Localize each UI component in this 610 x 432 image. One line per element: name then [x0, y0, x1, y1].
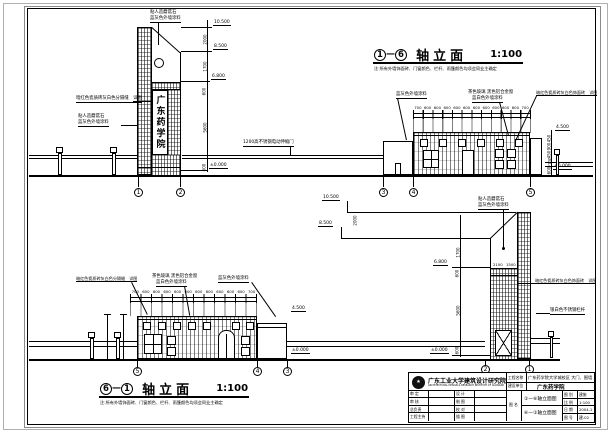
label-leader [503, 210, 504, 248]
dim-value: 1700 [203, 61, 208, 71]
material-label: 暗红色瓷质砖灰白色分隔缝 详图 [76, 276, 137, 282]
material-label: 蓝灰色外墙涂料 [478, 203, 509, 210]
window [458, 139, 466, 147]
dim-value: 600 [546, 167, 551, 175]
dim-value: 600 [511, 105, 521, 110]
axis-bubble: 5 [526, 188, 535, 197]
tower-band [490, 268, 517, 276]
tb-divider [506, 373, 507, 421]
window [241, 336, 250, 345]
institute-logo: ★ [412, 376, 425, 389]
door-mullion [226, 334, 227, 359]
elevation-flag: 6.800 [211, 74, 226, 80]
gate-rail-line [287, 341, 485, 342]
fence-rail-line [531, 343, 560, 344]
window-large [423, 150, 439, 168]
meta-value: 建-02 [579, 416, 589, 420]
cornice-line [137, 319, 257, 320]
material-label: 茶色玻璃 黑色铝合金窗 [152, 274, 197, 280]
fence-post [90, 338, 94, 359]
window [496, 139, 504, 147]
material-label: 暗红色瓷质砖灰白色分隔缝 详图 [76, 96, 142, 103]
dim-value: 600 [481, 105, 491, 110]
tower-right-edge [180, 52, 181, 175]
dim-value: 5600 [203, 122, 208, 132]
dim-leader [452, 355, 490, 356]
role-label: 制 图 [455, 398, 475, 406]
dim-value: 2000 [353, 215, 358, 225]
extension-lines [413, 119, 531, 133]
dim-value: 600 [442, 105, 452, 110]
dim-value: 600 [201, 88, 206, 96]
material-label: 贴人造蘑菇石 [478, 197, 504, 203]
flag-leader [347, 201, 348, 212]
dim-value: 600 [433, 105, 443, 110]
window-large [144, 334, 162, 354]
axis-line [413, 177, 414, 187]
window [158, 322, 166, 330]
title-dash: — [386, 50, 395, 60]
flag-leader [341, 227, 342, 238]
window [507, 160, 516, 169]
dim-ticks [413, 110, 531, 119]
material-label: 暗红色瓷质砖灰白色饰面砖 详图 [535, 278, 596, 284]
flag-leader [347, 212, 516, 213]
axis-bubble: 4 [253, 367, 262, 376]
dim-leader [181, 27, 212, 28]
role-label: 审 核 [409, 398, 429, 406]
fence-post [116, 338, 120, 359]
elevation-flag: 8.500 [318, 221, 333, 227]
dim-value: 600 [172, 289, 183, 294]
material-label: 暗红色瓷质砖灰白色饰面砖 详图 [536, 90, 597, 96]
dimension-line [460, 215, 461, 357]
client-label: 建设单位 [508, 384, 523, 388]
role-value [429, 398, 455, 406]
fence-rail-line [531, 338, 560, 339]
ground-line [29, 359, 560, 361]
dim-value: 600 [215, 289, 226, 294]
title-note: 注:所有外墙饰面砖、门窗颜色、栏杆、雨篷颜色均须会同业主确定 [100, 400, 223, 406]
dim-value: 2100 [493, 262, 503, 267]
axis-bubble: 6 [100, 383, 112, 395]
label-leader [518, 283, 535, 284]
tower-sign-board: 广东药学院 [152, 90, 168, 155]
tower-hatch [152, 155, 180, 175]
project-label: 工程名称 [508, 376, 523, 380]
gate-pillar [123, 315, 124, 359]
axis-line [180, 177, 181, 187]
fence-post [550, 337, 553, 358]
dim-chain: 700600600600600600600600600600600700 [130, 289, 257, 294]
annex-line [257, 327, 287, 328]
title-underline [373, 62, 523, 64]
signature-table: 审 定 设 计 审 核 制 图 总负责 校 对 工程主持 描 图 [409, 390, 506, 421]
drawing-title: ①—⑥轴立面图 [524, 395, 557, 402]
window [246, 322, 254, 330]
dim-value: 1700 [456, 247, 461, 257]
gate-note-leader [290, 146, 291, 155]
axis-bubble: 1 [134, 188, 143, 197]
fence-rail-line [545, 162, 593, 163]
elevation-flag: ±0.000 [291, 348, 310, 354]
dim-value: 600 [201, 164, 206, 172]
dim-leader [181, 81, 210, 82]
window [173, 322, 181, 330]
gate-rail-line [182, 155, 383, 156]
fence-post [58, 153, 62, 175]
ground-line [29, 175, 593, 177]
end-pier [530, 138, 542, 175]
tb-divider [521, 405, 562, 406]
tb-divider [577, 390, 578, 421]
elevation-flag: 8.500 [213, 44, 228, 50]
fence-rail-line [29, 158, 138, 159]
axis-bubble: 1 [121, 383, 133, 395]
gate-pillar [107, 315, 108, 359]
dim-value: 600 [141, 289, 152, 294]
tower-door [495, 330, 512, 356]
material-label: 茶色玻璃 黑色铝合金窗 [468, 90, 513, 96]
label-leader [158, 23, 159, 45]
window [477, 139, 485, 147]
role-value [429, 390, 455, 398]
axis-bubble: 6 [395, 49, 407, 61]
gate-note: 1200高不锈钢电动伸缩门 [243, 140, 294, 147]
dim-leader [452, 267, 490, 268]
role-label: 审 定 [409, 390, 429, 398]
dim-value: 600 [452, 105, 462, 110]
drawing-title: ⑥—①轴立面图 [524, 409, 557, 416]
fence-post [556, 155, 559, 175]
elevation-flag: ±0.000 [209, 163, 228, 169]
window [439, 139, 447, 147]
annex-post [395, 163, 401, 175]
role-value [429, 413, 455, 421]
axis-bubble: 3 [379, 188, 388, 197]
door [462, 150, 474, 175]
role-value [429, 406, 455, 414]
project-name: 广东药学院大学城校区 大门、围墙 [528, 375, 592, 381]
axis-line [138, 177, 139, 187]
fence-rail-line [29, 155, 138, 156]
axis-bubble: 2 [176, 188, 185, 197]
tb-divider [506, 390, 596, 391]
elevation-flag: 10.500 [322, 195, 340, 201]
dim-leader [181, 51, 212, 52]
fence-post [112, 153, 116, 175]
label-leader [536, 313, 550, 314]
drawing-label: 图 名 [509, 403, 518, 407]
extension-lines [130, 303, 258, 316]
meta-value: 2004.1 [579, 408, 592, 412]
tb-divider [562, 405, 596, 406]
material-label: 蓝灰色外墙涂料 [78, 120, 109, 127]
role-value [475, 398, 506, 406]
leader-dot [502, 247, 505, 250]
dim-value: 1500 [506, 262, 516, 267]
window [188, 322, 196, 330]
gate-tower [517, 212, 531, 359]
material-label: 银白色不锈钢栏杆 [550, 308, 585, 315]
annex-wall [257, 323, 287, 359]
window [143, 322, 151, 330]
tower-logo-circle [154, 58, 164, 68]
dim-value: 700 [413, 105, 423, 110]
role-label: 描 图 [455, 413, 475, 421]
window [241, 347, 250, 356]
role-label: 总负责 [409, 406, 429, 414]
role-label: 设 计 [455, 390, 475, 398]
window [495, 160, 504, 169]
material-label: 贴人造蘑菇石 [150, 10, 176, 16]
tower-hatch [168, 90, 180, 155]
window [507, 149, 516, 158]
tower-plinth-line [137, 167, 181, 168]
dim-value: 600 [225, 289, 236, 294]
axis-bubble: 3 [283, 367, 292, 376]
axis-line [530, 177, 531, 187]
role-label: 校 对 [455, 406, 475, 414]
fence-rail-line [545, 166, 593, 167]
window [167, 347, 176, 356]
dim-ticks [130, 294, 258, 303]
elevation-flag: 4.500 [291, 306, 306, 312]
meta-label: 日 期 [564, 408, 573, 412]
axis-bubble: 1 [374, 49, 386, 61]
dim-value: 600 [151, 289, 162, 294]
dim-value: 2000 [203, 34, 208, 44]
dim-value: 900 [546, 143, 551, 151]
window [167, 336, 176, 345]
title-block: ★ 广东工业大学建筑设计研究院 ARCHITECTURAL DESIGN & R… [408, 372, 595, 423]
dim-value: 600 [423, 105, 433, 110]
title-underline [99, 396, 249, 398]
flag-leader [341, 238, 490, 239]
dim-value: 600 [454, 347, 459, 355]
dim-value: 600 [193, 289, 204, 294]
window [232, 322, 240, 330]
window [495, 149, 504, 158]
fence-rail-line [29, 346, 137, 347]
label-leader [133, 101, 152, 102]
fence-rail-line [29, 341, 137, 342]
axis-bubble: 4 [409, 188, 418, 197]
material-label: 蓝灰色外墙涂料 [396, 92, 427, 99]
window [420, 139, 428, 147]
material-label: 蓝灰色外墙涂料 [150, 16, 181, 23]
tower-band [152, 82, 180, 90]
dim-value: 600 [162, 289, 173, 294]
dim-value: 450 [546, 135, 551, 143]
tower-sign-text: 广东药学院 [154, 95, 167, 150]
dim-value: 600 [454, 270, 459, 278]
dim-value: 600 [472, 105, 482, 110]
elevation-flag: 4.500 [555, 125, 570, 131]
elevation-flag: ±0.000 [430, 348, 449, 354]
meta-label: 图 别 [564, 393, 573, 397]
tb-divider [562, 413, 596, 414]
elevation-title-bottom: 6—1 轴立面 1:100 [100, 378, 248, 398]
elevation-flag: 6.800 [433, 260, 448, 266]
title-note: 注:所有外墙饰面砖、门窗颜色、栏杆、雨篷颜色均须会同业主确定 [374, 66, 497, 72]
elevation-title-top: 1—6 轴立面 1:100 [374, 44, 522, 64]
gate-rail-line [182, 158, 383, 159]
title-scale: 1:100 [216, 383, 248, 394]
elevation-flag: 10.500 [213, 20, 231, 26]
material-label: 蓝灰色外墙涂料 [218, 276, 249, 283]
dim-value: 600 [204, 289, 215, 294]
material-label: 贴人造蘑菇石 [78, 114, 104, 120]
title-scale: 1:100 [490, 49, 522, 60]
tb-divider [562, 398, 596, 399]
meta-label: 图 号 [564, 416, 573, 420]
axis-bubble: 5 [133, 367, 142, 376]
title-dash: — [112, 384, 121, 394]
material-label: 蓝白色外墙涂料 [156, 280, 187, 287]
dim-value: 600 [462, 105, 472, 110]
dim-value: 600 [236, 289, 247, 294]
axis-line [383, 177, 384, 187]
dim-value: 5600 [456, 305, 461, 315]
window [203, 322, 211, 330]
role-value [475, 406, 506, 414]
meta-value: 建施 [579, 393, 587, 397]
role-label: 工程主持 [409, 413, 429, 421]
cornice-line [413, 135, 530, 136]
role-value [475, 413, 506, 421]
drawing-sheet: 1200高不锈钢电动伸缩门 广东药学院 10.500 8.500 6.800 ±… [0, 0, 610, 432]
label-leader [121, 125, 137, 126]
dim-chain: 700600600600600600600600600600600700 [413, 105, 530, 110]
role-value [475, 390, 506, 398]
institute-name-en: ARCHITECTURAL DESIGN & RESEARCH INSTITUT… [428, 384, 504, 387]
